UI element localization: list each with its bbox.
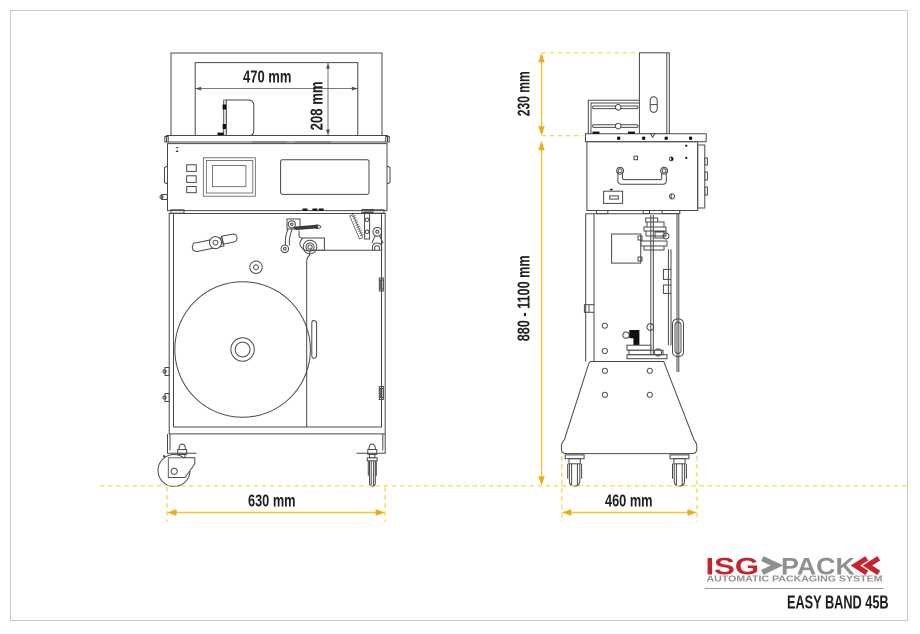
svg-text:AUTOMATIC PACKAGING SYSTEM: AUTOMATIC PACKAGING SYSTEM [707, 575, 883, 584]
svg-text:470 mm: 470 mm [243, 66, 291, 86]
svg-text:880 - 1100 mm: 880 - 1100 mm [513, 255, 533, 341]
svg-text:230 mm: 230 mm [513, 71, 533, 116]
svg-text:460 mm: 460 mm [605, 491, 653, 511]
svg-text:208 mm: 208 mm [306, 81, 326, 130]
svg-text:630 mm: 630 mm [248, 491, 296, 511]
svg-text:EASY BAND 45B: EASY BAND 45B [787, 592, 889, 612]
